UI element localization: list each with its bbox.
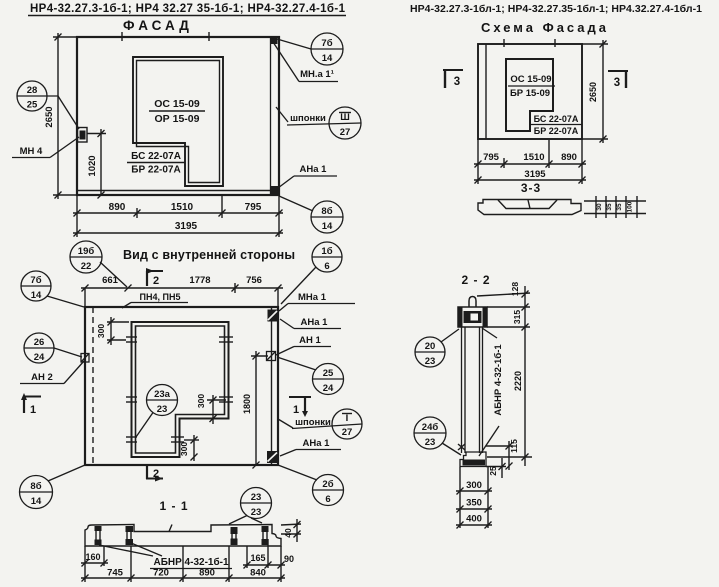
svg-text:795: 795 xyxy=(483,152,500,163)
svg-text:115: 115 xyxy=(509,439,519,453)
svg-text:7б: 7б xyxy=(321,38,332,49)
svg-text:1778: 1778 xyxy=(189,275,210,286)
svg-text:АН 2: АН 2 xyxy=(31,372,53,383)
svg-text:АН 1: АН 1 xyxy=(299,335,321,346)
svg-text:300: 300 xyxy=(96,324,106,338)
svg-text:1: 1 xyxy=(30,404,36,416)
svg-text:128: 128 xyxy=(510,282,520,296)
svg-text:14: 14 xyxy=(31,290,42,301)
svg-text:25: 25 xyxy=(488,466,498,476)
svg-text:2б: 2б xyxy=(322,479,333,490)
svg-text:1510: 1510 xyxy=(523,152,544,163)
svg-text:2650: 2650 xyxy=(44,106,55,127)
svg-text:24б: 24б xyxy=(422,422,439,433)
svg-text:МНа 1: МНа 1 xyxy=(298,292,327,303)
svg-text:165: 165 xyxy=(250,553,265,563)
svg-text:ОР 15-09: ОР 15-09 xyxy=(155,113,200,125)
svg-text:23а: 23а xyxy=(154,389,171,400)
svg-text:Вид с внутренней стороны: Вид с внутренней стороны xyxy=(123,248,295,262)
svg-text:3195: 3195 xyxy=(175,221,198,232)
svg-text:НР4-32.27.3-1б-1; НР4 32.27 35: НР4-32.27.3-1б-1; НР4 32.27 35-1б-1; НР4… xyxy=(30,3,346,15)
svg-text:100: 100 xyxy=(627,201,634,212)
svg-text:890: 890 xyxy=(199,568,215,579)
svg-text:3: 3 xyxy=(614,77,620,89)
svg-text:АБНР 4-32-1б-1: АБНР 4-32-1б-1 xyxy=(153,556,228,568)
svg-text:I: I xyxy=(346,413,349,424)
svg-text:24: 24 xyxy=(34,352,45,363)
svg-text:БР 22-07А: БР 22-07А xyxy=(534,126,579,136)
svg-text:1б: 1б xyxy=(321,246,332,257)
svg-text:2: 2 xyxy=(153,275,159,287)
svg-text:1: 1 xyxy=(293,404,299,416)
svg-text:3-3: 3-3 xyxy=(521,181,541,195)
svg-text:2: 2 xyxy=(153,468,159,480)
svg-text:840: 840 xyxy=(250,568,266,579)
svg-text:3: 3 xyxy=(454,76,460,88)
svg-text:2650: 2650 xyxy=(588,82,598,102)
svg-text:Ш: Ш xyxy=(340,112,350,123)
svg-text:19б: 19б xyxy=(78,246,95,257)
svg-text:27: 27 xyxy=(342,427,353,438)
svg-text:1 - 1: 1 - 1 xyxy=(159,499,188,513)
svg-text:315: 315 xyxy=(512,310,522,324)
svg-text:20: 20 xyxy=(425,341,436,352)
svg-text:720: 720 xyxy=(153,568,169,579)
svg-text:НР4-32.27.3-1бл-1; НР4-32.27.3: НР4-32.27.3-1бл-1; НР4-32.27.35-1бл-1; Н… xyxy=(410,3,702,15)
svg-text:756: 756 xyxy=(246,275,262,286)
svg-text:890: 890 xyxy=(561,152,577,163)
svg-text:8б: 8б xyxy=(30,481,41,492)
svg-text:МН.а 1¹: МН.а 1¹ xyxy=(300,69,334,80)
svg-text:35: 35 xyxy=(606,203,613,211)
svg-text:795: 795 xyxy=(245,202,262,213)
svg-text:350: 350 xyxy=(466,498,482,509)
svg-text:25: 25 xyxy=(323,368,334,379)
svg-text:400: 400 xyxy=(466,514,482,525)
svg-text:300: 300 xyxy=(179,442,189,456)
svg-text:26: 26 xyxy=(34,337,45,348)
svg-text:ПН4, ПН5: ПН4, ПН5 xyxy=(140,292,181,302)
svg-text:300: 300 xyxy=(196,394,206,408)
svg-text:БР 15-09: БР 15-09 xyxy=(510,88,550,99)
svg-text:АНа 1: АНа 1 xyxy=(303,438,331,449)
svg-text:23: 23 xyxy=(157,404,168,415)
svg-text:МН 4: МН 4 xyxy=(20,146,43,157)
svg-text:300: 300 xyxy=(466,480,482,491)
svg-text:7б: 7б xyxy=(30,275,41,286)
svg-text:шпонки: шпонки xyxy=(290,113,326,124)
svg-text:АНа 1: АНа 1 xyxy=(301,317,329,328)
svg-text:35: 35 xyxy=(616,203,623,211)
svg-text:661: 661 xyxy=(102,275,119,286)
svg-text:6: 6 xyxy=(325,494,330,505)
svg-text:1510: 1510 xyxy=(171,202,194,213)
svg-text:БР 22-07А: БР 22-07А xyxy=(131,165,180,176)
svg-text:6: 6 xyxy=(324,261,329,272)
svg-text:27: 27 xyxy=(340,127,351,138)
svg-text:14: 14 xyxy=(322,53,333,64)
svg-text:1800: 1800 xyxy=(242,394,252,414)
svg-text:АБНР 4-32-1б-1: АБНР 4-32-1б-1 xyxy=(493,344,504,416)
svg-text:14: 14 xyxy=(322,221,333,232)
svg-text:23: 23 xyxy=(251,507,262,518)
svg-text:745: 745 xyxy=(107,568,124,579)
svg-text:25: 25 xyxy=(27,100,38,111)
svg-text:8б: 8б xyxy=(321,206,332,217)
svg-text:23: 23 xyxy=(425,356,436,367)
svg-text:40: 40 xyxy=(283,528,293,538)
svg-text:23: 23 xyxy=(251,492,262,503)
svg-text:БС 22-07А: БС 22-07А xyxy=(534,114,579,124)
svg-text:ФАСАД: ФАСАД xyxy=(123,18,193,33)
svg-text:2 - 2: 2 - 2 xyxy=(461,273,490,287)
svg-text:28: 28 xyxy=(27,85,38,96)
svg-text:90: 90 xyxy=(284,554,294,564)
svg-text:3195: 3195 xyxy=(524,169,546,180)
svg-text:Схема Фасада: Схема Фасада xyxy=(481,20,609,35)
svg-text:БС 22-07А: БС 22-07А xyxy=(131,151,181,162)
svg-text:ОС 15-09: ОС 15-09 xyxy=(154,98,200,110)
svg-text:2220: 2220 xyxy=(513,371,523,391)
svg-text:23: 23 xyxy=(425,437,436,448)
svg-text:160: 160 xyxy=(85,552,100,562)
svg-text:АНа 1: АНа 1 xyxy=(300,164,328,175)
svg-text:14: 14 xyxy=(31,496,42,507)
svg-text:890: 890 xyxy=(109,202,126,213)
svg-text:1020: 1020 xyxy=(87,155,98,176)
svg-text:30: 30 xyxy=(596,203,603,211)
svg-text:22: 22 xyxy=(81,261,92,272)
svg-text:24: 24 xyxy=(323,383,334,394)
svg-text:ОС 15-09: ОС 15-09 xyxy=(510,74,551,85)
